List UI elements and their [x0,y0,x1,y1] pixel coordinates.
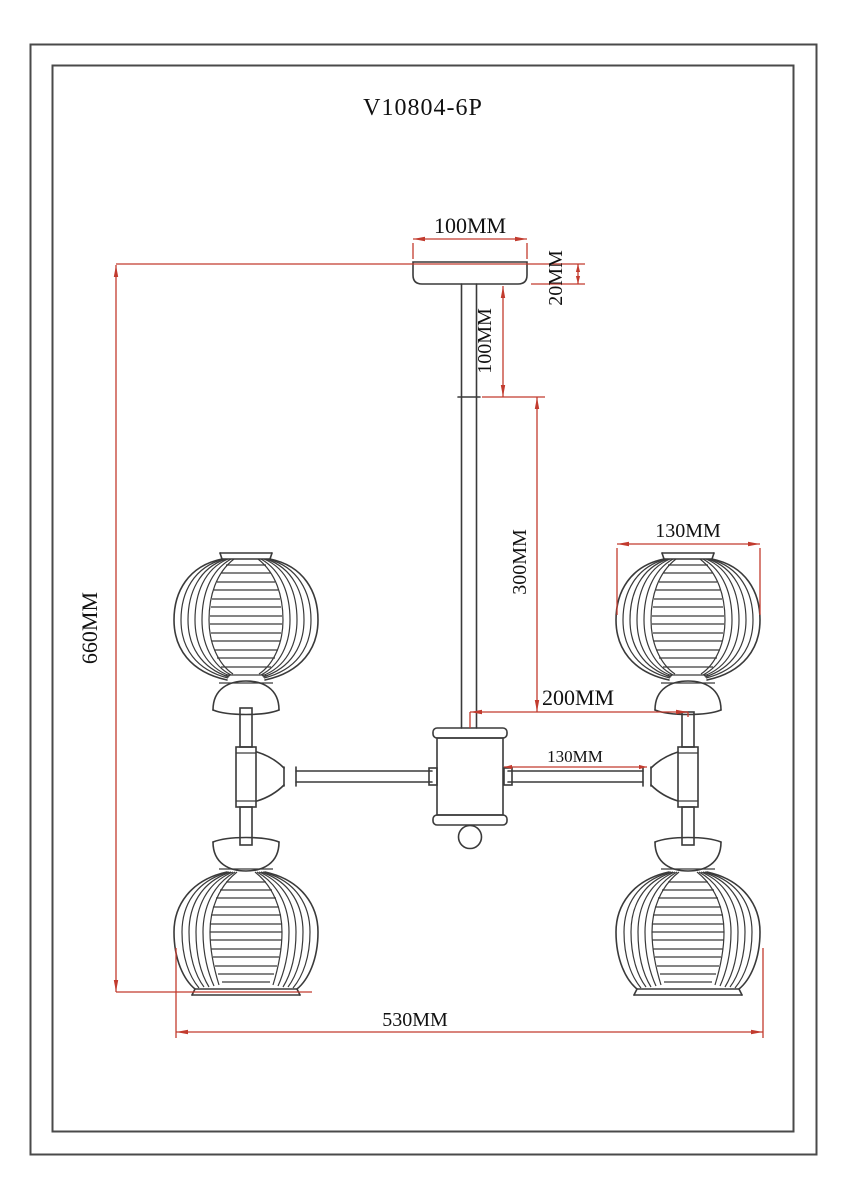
right-lower-stem [682,807,694,845]
dimension-label-rod-upper: 100MM [474,308,496,374]
dimension-canopy-width: 100MM [413,213,527,259]
center-hub [433,728,507,849]
dimension-canopy-height: 20MM [116,250,585,306]
right-upper-stem [682,712,694,747]
left-lower-stem [240,807,252,845]
shade-holder [213,838,279,872]
lamp-shade [616,553,760,680]
dimension-label-shade-diameter: 130MM [655,520,721,542]
right-post-tee [678,747,698,807]
drawing-title: V10804-6P [363,95,483,121]
shade-holder [655,681,721,715]
dimension-label-overall-height: 660MM [77,592,102,664]
technical-drawing: V10804-6P [0,0,848,1200]
lamp-top-left [174,553,318,715]
lamp-shade [174,872,318,995]
dimension-label-rod-lower: 300MM [509,529,531,595]
dimension-label-overall-width: 530MM [382,1009,448,1031]
arm-bell-flare [651,752,678,768]
shade-holder [655,838,721,872]
dimension-rod-upper: 100MM [474,286,545,397]
hub-finial-ball [459,826,482,849]
arm-bell-flare [257,752,284,768]
dimension-rod-lower: 300MM [509,397,537,712]
lamp-bottom-right [616,838,760,996]
ceiling-canopy [413,262,527,284]
dimension-overall-width: 530MM [176,948,763,1038]
dimension-label-canopy-height: 20MM [545,250,567,306]
lamp-shade [616,872,760,995]
dimension-label-center-to-lamp: 200MM [542,685,614,710]
lamp-shade [174,553,318,680]
right-arm [504,712,698,845]
dimension-label-arm-length: 130MM [547,747,603,766]
left-arm [236,708,437,845]
left-post-tee [236,747,256,807]
drawing-sheet: V10804-6P [0,0,848,1200]
shade-holder [213,681,279,715]
dimension-label-canopy-width: 100MM [434,213,506,238]
dimension-arm-length: 130MM [504,747,647,767]
lamp-top-right [616,553,760,715]
lamp-bottom-left [174,838,318,996]
